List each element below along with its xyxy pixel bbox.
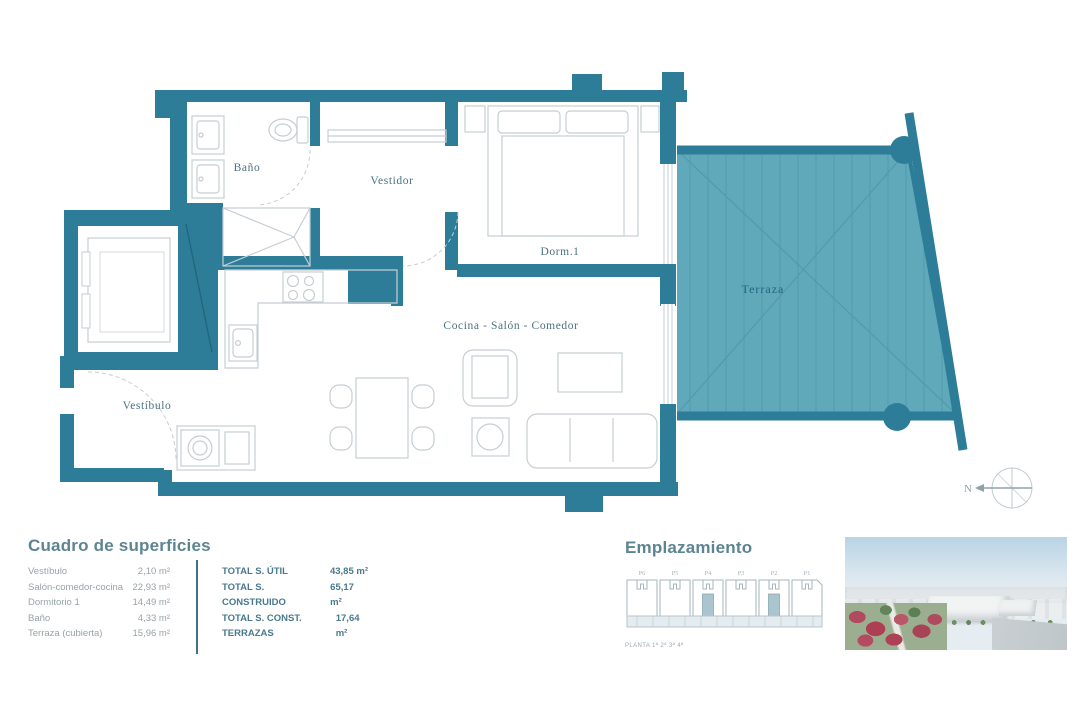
table-row: Salón-comedor-cocina 22,93 m² xyxy=(28,580,170,596)
block-label: P4 xyxy=(705,570,713,577)
dining-table xyxy=(330,378,434,458)
total-value: 65,17 m² xyxy=(330,580,368,611)
row-label: Terraza (cubierta) xyxy=(28,626,102,642)
row-label: Baño xyxy=(28,611,50,627)
armchair xyxy=(463,350,517,406)
total-label: TOTAL S. CONSTRUIDO xyxy=(222,580,330,611)
table-row: Terraza (cubierta) 15,96 m² xyxy=(28,626,170,642)
terrace-pillar-top xyxy=(890,136,918,164)
furniture xyxy=(177,106,659,470)
site-diagram: P6 P5 P4 P3 P2 P1 xyxy=(625,566,833,636)
toilet xyxy=(269,117,308,143)
compass-n-label: N xyxy=(964,483,972,495)
row-label: Vestíbulo xyxy=(28,564,67,580)
row-value: 4,33 m² xyxy=(138,611,170,627)
room-label-cocina-salon: Cocina - Salón - Comedor xyxy=(443,320,578,332)
row-value: 2,10 m² xyxy=(138,564,170,580)
room-label-vestibulo: Vestíbulo xyxy=(123,400,172,412)
block-label: P2 xyxy=(771,570,778,577)
highlighted-unit-p2 xyxy=(769,594,780,616)
photo-park xyxy=(845,603,947,650)
kitchen-column xyxy=(348,266,397,304)
emplazamiento-title: Emplazamiento xyxy=(625,538,752,558)
row-label: Salón-comedor-cocina xyxy=(28,580,123,596)
total-value: 17,64 m² xyxy=(336,611,368,642)
block-label: P1 xyxy=(804,570,811,577)
block-label: P6 xyxy=(639,570,647,577)
washer xyxy=(177,426,255,470)
room-label-bano: Baño xyxy=(234,162,261,174)
totals-table: TOTAL S. ÚTIL 43,85 m² TOTAL S. CONSTRUI… xyxy=(222,564,368,642)
table-row: Baño 4,33 m² xyxy=(28,611,170,627)
total-row: TOTAL S. CONSTRUIDO 65,17 m² xyxy=(222,580,368,611)
room-label-dorm1: Dorm.1 xyxy=(540,246,579,258)
terrace-pillar-bottom xyxy=(883,403,911,431)
surfaces-title: Cuadro de superficies xyxy=(28,536,211,556)
total-row: TOTAL S. ÚTIL 43,85 m² xyxy=(222,564,368,580)
row-value: 14,49 m² xyxy=(133,595,171,611)
north-arrow-icon: N xyxy=(964,468,1032,508)
total-value: 43,85 m² xyxy=(330,564,368,580)
table-row: Dormitorio 1 14,49 m² xyxy=(28,595,170,611)
terrace-strip xyxy=(627,616,822,627)
closet xyxy=(328,130,446,142)
total-row: TOTAL S. CONST. TERRAZAS 17,64 m² xyxy=(222,611,368,642)
block-label: P3 xyxy=(738,570,745,577)
bath-sinks xyxy=(192,116,224,198)
rug xyxy=(558,353,622,392)
row-label: Dormitorio 1 xyxy=(28,595,80,611)
table-row: Vestíbulo 2,10 m² xyxy=(28,564,170,580)
surfaces-table: Vestíbulo 2,10 m² Salón-comedor-cocina 2… xyxy=(28,564,170,642)
terrace-deck: Terraza xyxy=(677,113,963,450)
room-label-terraza: Terraza xyxy=(742,282,785,296)
vertical-divider xyxy=(196,560,198,654)
site-diagram-caption: PLANTA 1ª 2ª 3ª 4ª xyxy=(625,643,684,649)
bed xyxy=(465,106,659,236)
row-value: 22,93 m² xyxy=(133,580,171,596)
aerial-photo xyxy=(845,537,1067,650)
room-label-vestidor: Vestidor xyxy=(370,175,413,187)
coffee-table xyxy=(472,418,509,456)
row-value: 15,96 m² xyxy=(133,626,171,642)
floor-plan: Terraza xyxy=(0,0,1080,520)
photo-building-2 xyxy=(999,600,1037,616)
block-label: P5 xyxy=(672,570,679,577)
sofa xyxy=(527,414,657,468)
highlighted-unit-p4 xyxy=(703,594,714,616)
total-label: TOTAL S. CONST. TERRAZAS xyxy=(222,611,336,642)
total-label: TOTAL S. ÚTIL xyxy=(222,564,288,580)
